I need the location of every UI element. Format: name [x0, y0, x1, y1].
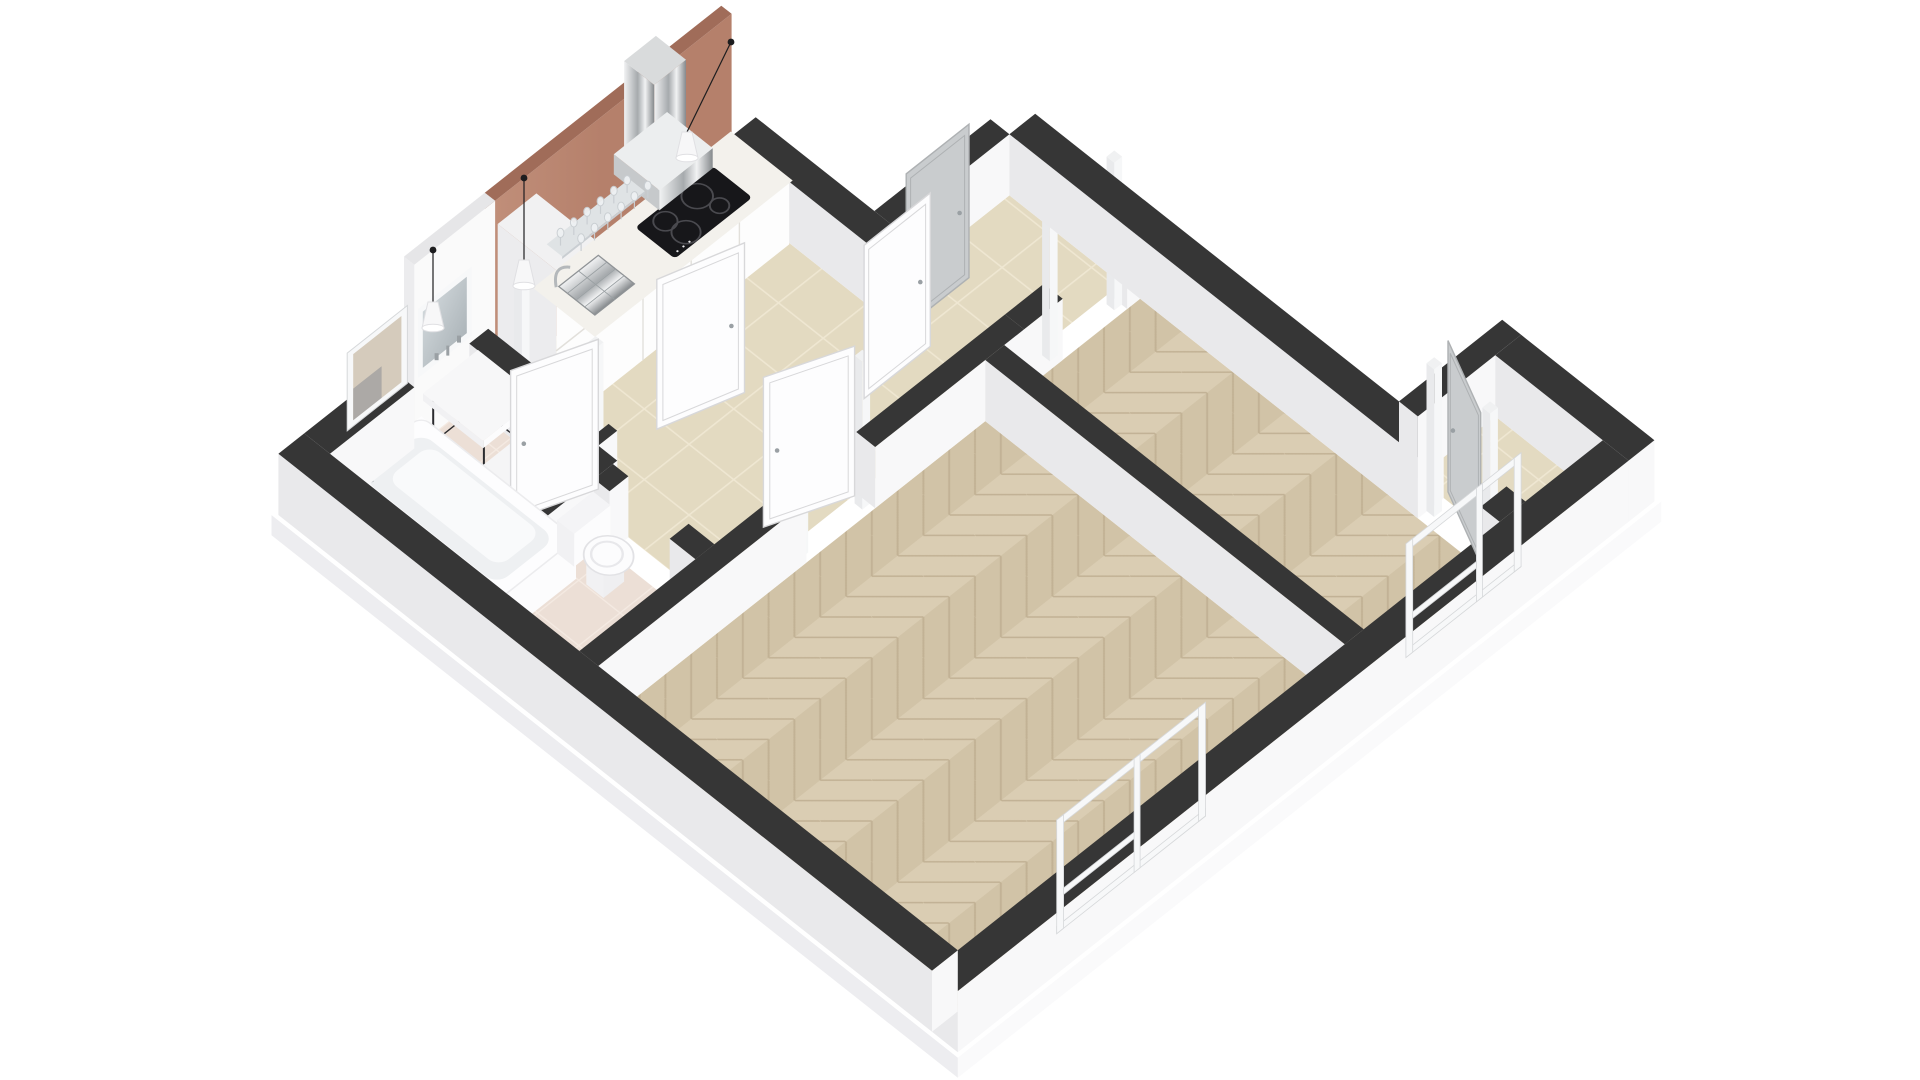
- door-handle: [729, 324, 734, 329]
- door-handle: [1451, 428, 1456, 433]
- living-room-door: [763, 346, 854, 527]
- bathroom-door: [511, 339, 599, 520]
- floorplan-3d-render: [0, 0, 1920, 1080]
- floorplan-canvas: [0, 0, 1920, 1080]
- door-handle: [957, 211, 962, 216]
- door-handle: [918, 280, 923, 285]
- door-handle: [522, 441, 527, 446]
- door-handle: [775, 448, 780, 453]
